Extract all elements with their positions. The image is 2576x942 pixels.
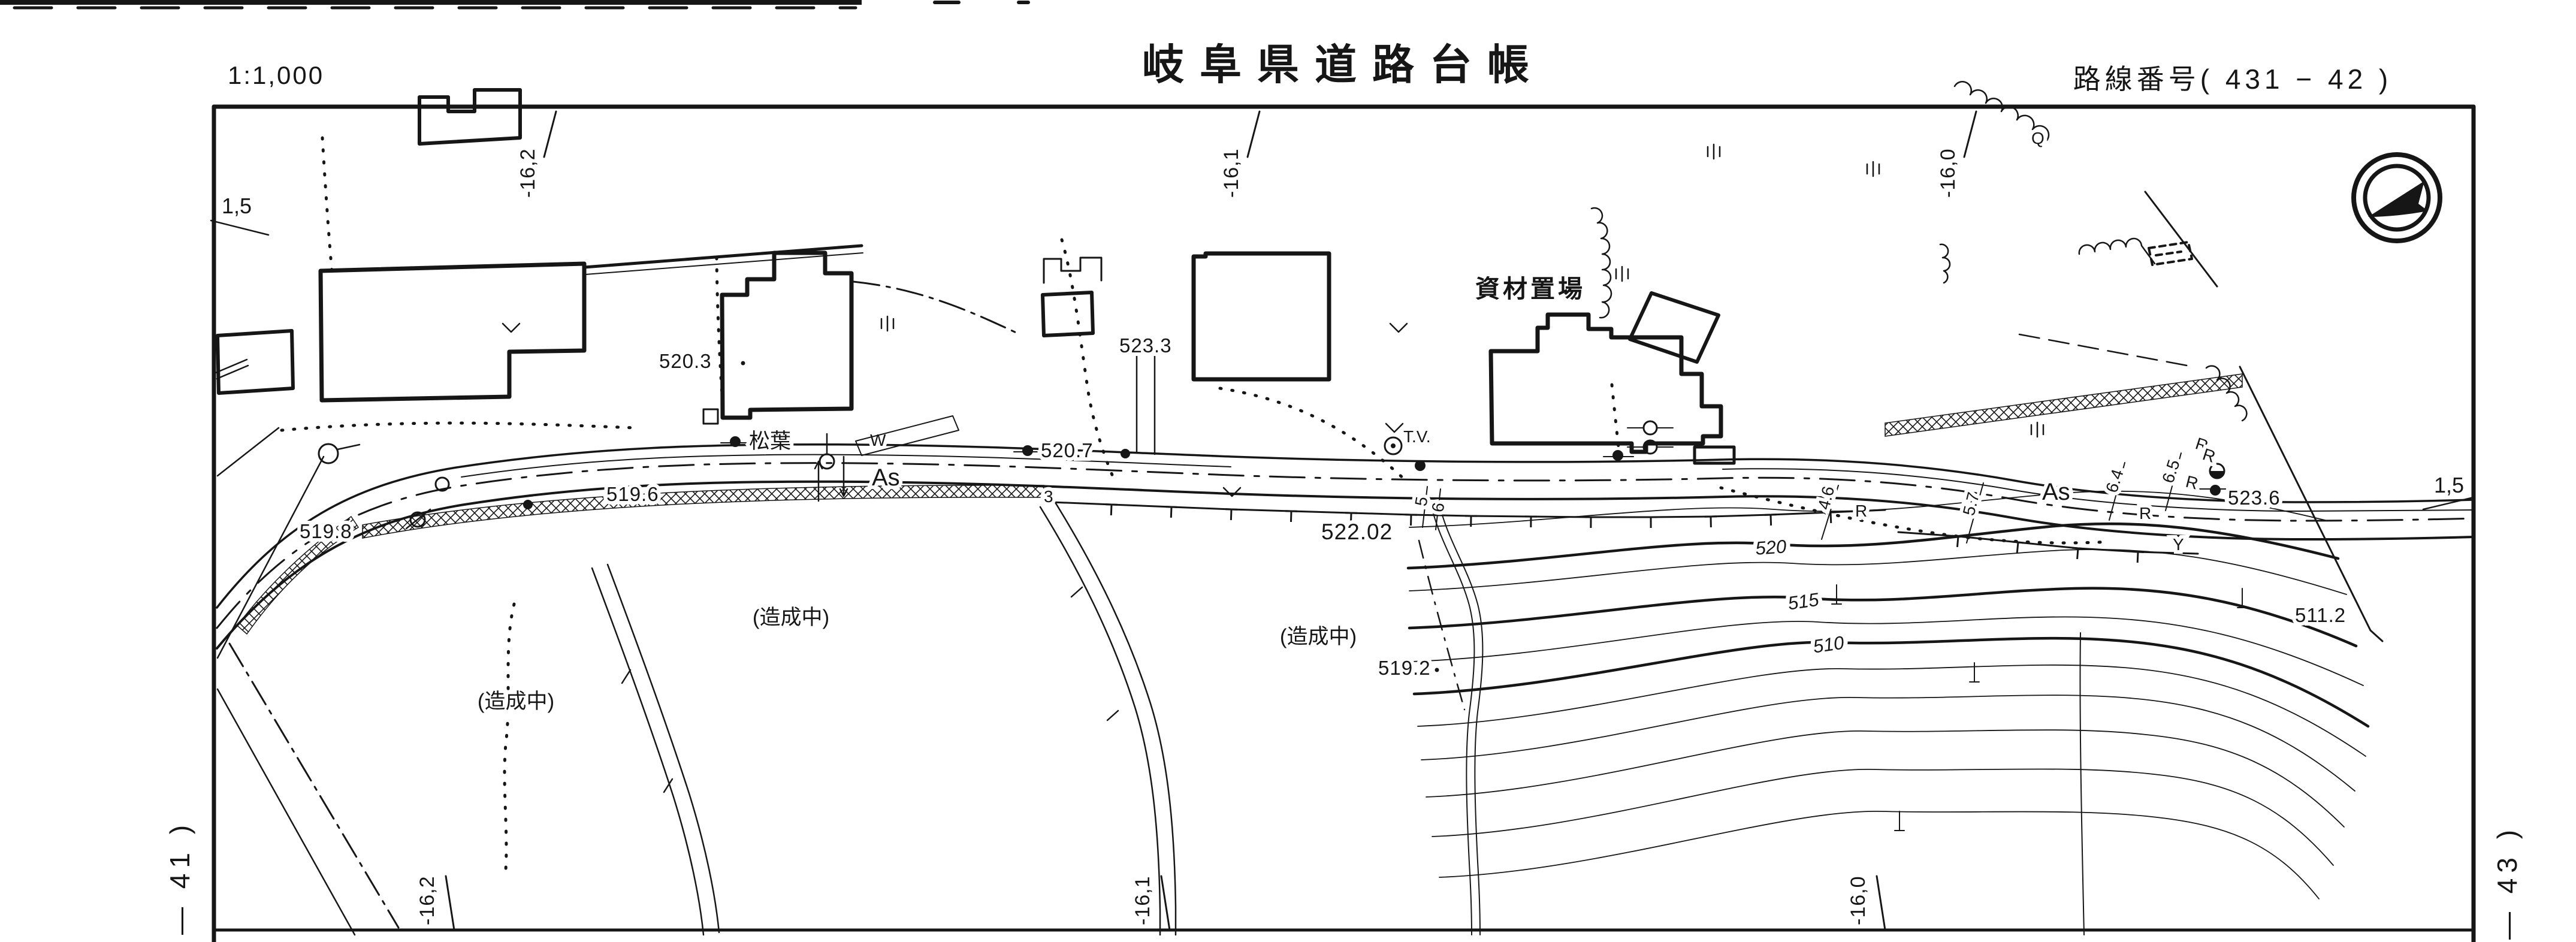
scale-label: 1:1,000 <box>228 61 324 89</box>
building-material-yard <box>1491 315 1721 452</box>
pavement-label-as-left: As <box>872 464 900 491</box>
building-g-tilted <box>1630 293 1719 362</box>
right-sheet-ref: — 43 ) <box>2492 825 2523 940</box>
map-sheet: 1:1,000 岐阜県道路台帳 路線番号( 431 − 42 ) -16,2 -… <box>0 0 2576 942</box>
buildings <box>218 90 2192 463</box>
cadastral-lines <box>216 192 2382 935</box>
sheet-title: 岐阜県道路台帳 <box>1142 41 1545 88</box>
lot-number-3: 3 <box>1044 487 1053 506</box>
spot-elevation-519-8: 519.8 <box>300 520 352 542</box>
left-sheet-ref: — 41 ) <box>164 820 195 935</box>
rail-label-r2: R <box>2139 504 2151 523</box>
building-a <box>321 264 584 400</box>
route-number-label: 路線番号( 431 − 42 ) <box>2073 64 2393 95</box>
top-tick-label-16-0: -16,0 <box>1937 149 1959 198</box>
left-station-label: 1,5 <box>222 194 252 218</box>
contour-label-520: 520 <box>1754 536 1787 559</box>
point-label-y: Y <box>2173 535 2184 554</box>
under-construction-label-3: (造成中) <box>1280 625 1357 648</box>
north-arrow-icon <box>2354 155 2440 241</box>
place-label-material-yard: 資材置場 <box>1475 275 1586 303</box>
main-road <box>217 445 2474 648</box>
contour-label-515: 515 <box>1786 589 1820 614</box>
spot-elevation-522-02: 522.02 <box>1321 520 1393 544</box>
bottom-tick-label-16-0: -16,0 <box>1847 876 1870 926</box>
width-annotation-6: 6 <box>1428 501 1448 514</box>
width-annotation-5: 5 <box>1411 495 1431 508</box>
right-station-label: 1,5 <box>2434 473 2464 497</box>
contour-lines <box>1408 491 2368 899</box>
scan-artifact-strip <box>0 0 1028 8</box>
under-construction-label-2: (造成中) <box>753 606 829 629</box>
rail-label-r5: R <box>2184 472 2200 493</box>
building-d <box>1194 253 1329 379</box>
spot-elevation-520-7: 520.7 <box>1041 439 1094 461</box>
spot-elevation-511-2: 511.2 <box>2295 604 2346 626</box>
pavement-label-as-right: As <box>2042 479 2070 505</box>
building-left-border <box>218 331 293 393</box>
spot-elevation-520-3: 520.3 <box>659 350 712 372</box>
top-tick-label-16-2: -16,2 <box>517 149 539 198</box>
small-shed <box>703 409 718 424</box>
bottom-tick-label-16-1: -16,1 <box>1131 876 1154 926</box>
width-annotation-6-5: 6.5 <box>2158 457 2184 485</box>
building-b <box>722 253 851 418</box>
spot-elevation-523-6: 523.6 <box>2228 487 2281 509</box>
point-label-q: Q <box>2031 129 2045 147</box>
spot-elevation-519-2: 519.2 <box>1378 657 1431 679</box>
building-c <box>1043 292 1093 336</box>
building-a2 <box>419 90 520 144</box>
point-label-tv: T.V. <box>1403 427 1431 446</box>
road-ledger-map: 1:1,000 岐阜県道路台帳 路線番号( 431 − 42 ) -16,2 -… <box>0 0 2576 942</box>
width-annotation-4-6: 4.6 <box>1814 484 1838 511</box>
contour-label-510: 510 <box>1811 632 1845 657</box>
rail-label-r1: R <box>1855 502 1867 520</box>
spot-elevation-519-6: 519.6 <box>606 483 659 505</box>
spot-elevation-523-3: 523.3 <box>1119 334 1172 357</box>
spot-height-spikes <box>1832 585 2247 831</box>
top-tick-label-16-1: -16,1 <box>1220 149 1243 198</box>
width-annotation-6-4: 6.4 <box>2102 467 2127 495</box>
under-construction-label-1: (造成中) <box>478 690 554 713</box>
embankment-hatch <box>237 374 2242 634</box>
header: 1:1,000 岐阜県道路台帳 路線番号( 431 − 42 ) <box>228 41 2392 95</box>
place-label-matsuba: 松葉 <box>749 430 791 453</box>
bottom-tick-label-16-2: -16,2 <box>416 876 439 926</box>
